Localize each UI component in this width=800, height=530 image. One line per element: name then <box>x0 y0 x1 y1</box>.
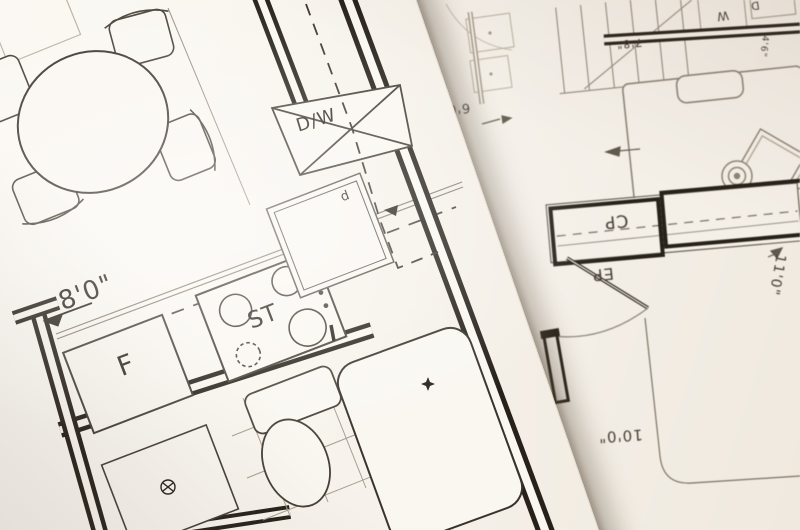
shower-box <box>102 425 239 530</box>
dining-set <box>0 4 222 231</box>
blueprint-photo-scene: CP EP W D 6'0" 7'8" 4'6" 11'0" 10'0" <box>0 0 800 530</box>
bathtub <box>332 322 529 530</box>
front-plan-drawing <box>0 0 800 530</box>
faint-furniture-outline <box>0 0 81 64</box>
floorplan-sheet-front: 8'0" F ST D/W d <box>0 0 800 530</box>
